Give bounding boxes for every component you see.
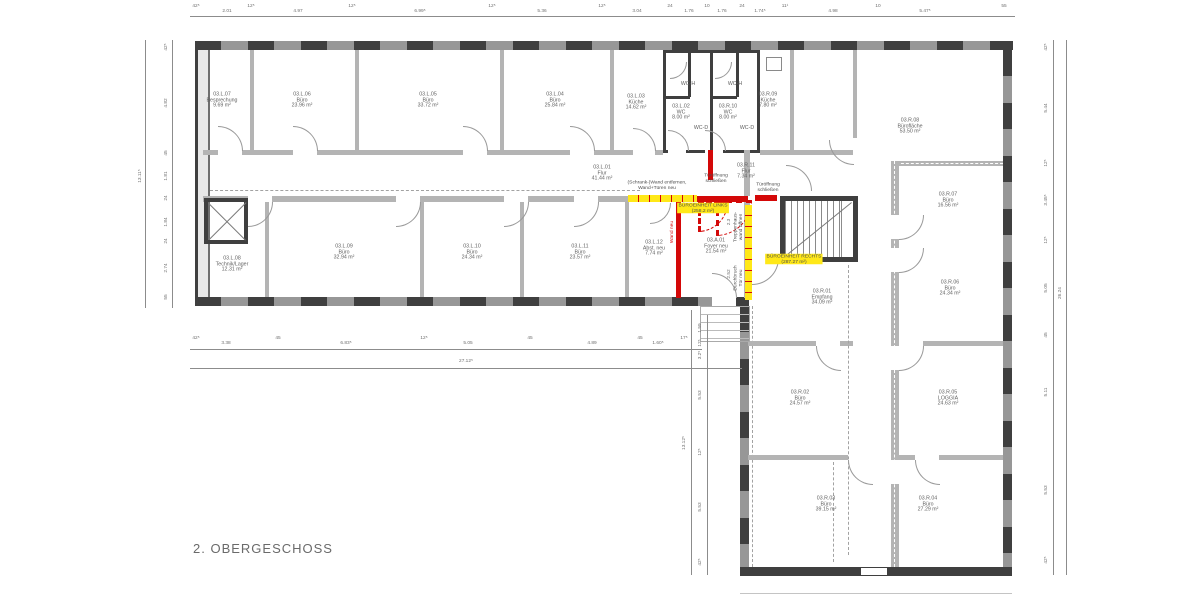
- partition: [500, 50, 504, 150]
- room-label: 03.R.11Flur7.34 m²: [737, 163, 755, 180]
- door-arc: [899, 248, 924, 273]
- dim-label: 42⁵: [1044, 43, 1049, 50]
- room-id: 03.L.12: [643, 240, 665, 246]
- dim-label: 5.11: [1044, 388, 1049, 397]
- wall-r01-r02b: [840, 341, 853, 346]
- room-area: 7.34 m²: [737, 174, 755, 180]
- door-arc: [829, 140, 854, 165]
- dim-label: 42⁵: [698, 558, 703, 565]
- door-arc: [504, 202, 529, 227]
- dim-label: 42⁵: [164, 43, 169, 50]
- dim-line-center: [707, 315, 708, 575]
- room-label: 03.L.02WC8.00 m²: [672, 104, 690, 121]
- dim-label: 1.60⁵: [652, 341, 663, 346]
- dim-label: 2.74: [164, 263, 169, 272]
- dim-label: 12⁵: [247, 4, 254, 9]
- door-arc: [574, 202, 599, 227]
- dim-line-left: [172, 40, 173, 308]
- room-label: 03.L.06Büro23.96 m²: [292, 92, 313, 109]
- r08-wall-dashed-line: [891, 163, 1003, 164]
- room-area: 23.96 m²: [292, 103, 313, 109]
- dim-line-right-total: [1066, 40, 1067, 575]
- dim-label: 11¹: [782, 4, 789, 9]
- wall-to-remove-highlight: [628, 195, 697, 202]
- room-area: 12.31 m²: [216, 267, 249, 273]
- wall-r05-r04b: [939, 455, 1003, 460]
- dim-label: 45: [527, 336, 532, 341]
- room-area: 7.80 m²: [759, 103, 777, 109]
- dim-line-bottom-total: [190, 368, 742, 369]
- dim-label: 3.04: [632, 9, 641, 14]
- dim-label: 55: [164, 294, 169, 299]
- dim-line-right: [1053, 40, 1054, 575]
- room-id: 03.R.07: [938, 192, 959, 198]
- door-arc-stair: [786, 165, 812, 191]
- partition: [355, 50, 359, 150]
- exterior-wall-left: [195, 50, 210, 297]
- dim-label: 12⁵: [1044, 236, 1049, 243]
- dim-label: 5.05: [463, 341, 472, 346]
- dim-label: 2.01: [222, 9, 231, 14]
- partition: [853, 50, 857, 138]
- dim-label: 5.05: [1044, 283, 1049, 292]
- room-label: 03.R.09Küche7.80 m²: [759, 92, 777, 109]
- new-wall: [697, 196, 748, 202]
- kitchen-fixture: [766, 57, 782, 71]
- door-arc: [463, 126, 488, 151]
- room-id: 03.R.02: [790, 390, 811, 396]
- dim-line-bottom-cut: [740, 593, 1012, 594]
- dim-label: 3.38: [221, 341, 230, 346]
- dim-label: 12⁵: [698, 339, 703, 346]
- dim-label: 4.82: [164, 98, 169, 107]
- room-area: 33.72 m²: [418, 103, 439, 109]
- foyer-dim: 2.3: [727, 219, 732, 226]
- room-area: 39.15 m²: [816, 507, 837, 513]
- dim-label: 1.76: [717, 9, 726, 14]
- room-label: 03.L.01Flur41.44 m²: [592, 165, 613, 182]
- dim-label: 17⁵: [680, 336, 687, 341]
- room-label: 03.R.01Empfang34.09 m²: [811, 289, 832, 306]
- dim-label: 45: [275, 336, 280, 341]
- dim-label: 1.81: [164, 171, 169, 180]
- dim-line-left-total: [145, 40, 146, 308]
- partition: [790, 50, 794, 150]
- room-area: 16.56 m²: [938, 203, 959, 209]
- dim-label: 12⁵: [420, 336, 427, 341]
- annotation-close-door-right: Türöffnung schließen: [756, 182, 780, 193]
- room-area: 34.09 m²: [811, 300, 832, 306]
- room-area: 9.69 m²: [207, 103, 238, 109]
- room-label: 03.R.05LOGGIA24.63 m²: [938, 390, 959, 407]
- drawing-title: 2. OBERGESCHOSS: [193, 541, 333, 556]
- dim-line-bottom: [190, 349, 702, 350]
- dim-label: 5.53: [1044, 485, 1049, 494]
- wc-label: WC-D: [740, 125, 754, 131]
- door-arc: [848, 460, 873, 485]
- room-label: 03.L.10Büro24.34 m²: [462, 244, 483, 261]
- room-area: 7.74 m²: [643, 251, 665, 257]
- door-arc: [396, 202, 421, 227]
- dim-label: 1.74⁵: [754, 9, 765, 14]
- exterior-wall-leftwing-bottom: [195, 297, 749, 306]
- wc-label: WC-H: [681, 81, 695, 87]
- room-id: 03.R.04: [918, 496, 939, 502]
- room-id: 03.R.09: [759, 92, 777, 98]
- room-label: 03.R.02Büro24.57 m²: [790, 390, 811, 407]
- annotation-close-door-left: Türöffnung schließen: [704, 173, 728, 184]
- wc-partition: [736, 53, 739, 97]
- dim-label: 10: [875, 4, 880, 9]
- dim-total: 13.12⁵: [682, 436, 687, 450]
- partition: [610, 50, 614, 150]
- dim-label: 1.76: [684, 9, 693, 14]
- room-id: 03.R.01: [811, 289, 832, 295]
- annotation-breakthrough: Durchbruch Tür neu: [733, 265, 744, 290]
- room-area: 23.57 m²: [570, 255, 591, 261]
- dim-label: 6.83⁵: [340, 341, 351, 346]
- room-area: 53.50 m²: [897, 129, 922, 135]
- room-id: 03.L.04: [545, 92, 566, 98]
- door-gap: [891, 215, 899, 239]
- stairwall-opening-highlight: [745, 205, 752, 300]
- annotation-wall-remove: (Schrank-)Wand entfernen, Wand+Türen neu: [628, 180, 687, 191]
- bottom-wall-opening: [861, 568, 887, 575]
- partition: [420, 202, 424, 297]
- annotation-stairwall-open: Treppenhaus- wand öffnen: [733, 212, 744, 242]
- dim-total: 27.12⁵: [459, 359, 473, 364]
- dim-label: 10: [704, 4, 709, 9]
- room-id: 03.A.01: [704, 238, 728, 244]
- room-area: 8.00 m²: [672, 115, 690, 121]
- door-arc: [248, 202, 273, 227]
- door-arc: [899, 346, 924, 371]
- room-id: 03.L.05: [418, 92, 439, 98]
- dim-label: 42⁵: [1044, 556, 1049, 563]
- wall-r02-r03: [748, 455, 848, 460]
- room-label: 03.L.09Büro32.94 m²: [334, 244, 355, 261]
- room-label: 03.L.11Büro23.57 m²: [570, 244, 591, 261]
- door-arc: [915, 460, 940, 485]
- room-area: 32.94 m²: [334, 255, 355, 261]
- dim-label: 1.59: [698, 323, 703, 332]
- room-id: 03.R.08: [897, 118, 922, 124]
- dim-label: 24: [164, 195, 169, 200]
- door-arc: [899, 215, 924, 240]
- dim-label: 5.36: [537, 9, 546, 14]
- dim-label: 3.2⁵: [698, 351, 703, 360]
- dim-label: 12⁵: [348, 4, 355, 9]
- wall-r06-r05: [923, 341, 1003, 346]
- dim-label: 4.98: [828, 9, 837, 14]
- room-id: 03.L.10: [462, 244, 483, 250]
- room-area: 21.54 m²: [704, 249, 728, 255]
- dim-label: 1.84: [164, 217, 169, 226]
- dim-label: 4.97: [293, 9, 302, 14]
- room-area: 8.00 m²: [719, 115, 737, 121]
- room-label: 03.R.10WC8.00 m²: [719, 104, 737, 121]
- exterior-wall-rightblock-right: [1003, 50, 1012, 567]
- dim-label: 42⁵: [192, 4, 199, 9]
- room-area: 24.63 m²: [938, 401, 959, 407]
- door-arc: [650, 203, 671, 224]
- dim-label: 45: [637, 336, 642, 341]
- dim-label: 12⁵: [488, 4, 495, 9]
- door-arc: [293, 126, 318, 151]
- dim-label: 5.53: [698, 502, 703, 511]
- dim-label: 5.47⁵: [919, 9, 930, 14]
- door-gap: [891, 346, 899, 370]
- room-label: 03.L.07Besprechung9.69 m²: [207, 92, 238, 109]
- dim-label: 24: [667, 4, 672, 9]
- floor-plan: 03.L.07Besprechung9.69 m² 03.L.06Büro23.…: [0, 0, 1200, 600]
- door-gap: [891, 460, 899, 484]
- room-id: 03.R.06: [940, 280, 961, 286]
- room-id: 03.L.11: [570, 244, 591, 250]
- foyer-dim: 2.52: [727, 269, 732, 278]
- room-id: 03.L.02: [672, 104, 690, 110]
- door-arc: [816, 346, 841, 371]
- room-area: 24.34 m²: [940, 291, 961, 297]
- room-label: 03.L.05Büro33.72 m²: [418, 92, 439, 109]
- room-id: 03.L.09: [334, 244, 355, 250]
- room-label: 03.L.04Büro25.84 m²: [545, 92, 566, 109]
- room-area: 27.29 m²: [918, 507, 939, 513]
- dim-label: 12⁵: [1044, 159, 1049, 166]
- room-label: 03.L.03Küche14.62 m²: [626, 94, 647, 111]
- annotation-unit-left: BÜROEINHEIT LINKS (258.2 m²): [677, 203, 729, 214]
- new-wall: [676, 202, 681, 298]
- dashed-axis: [848, 265, 849, 555]
- wc-partition: [713, 96, 737, 99]
- dim-label: 24: [739, 4, 744, 9]
- room-id: 03.R.03: [816, 496, 837, 502]
- dim-label: 3.45⁵: [1044, 194, 1049, 205]
- door-arc: [218, 126, 243, 151]
- dim-label: 5.44: [1044, 103, 1049, 112]
- door-arc: [570, 126, 595, 151]
- dim-label: 12⁵: [698, 448, 703, 455]
- dim-total: 13.11⁵: [138, 169, 143, 183]
- room-id: 03.R.10: [719, 104, 737, 110]
- room-label: 03.R.07Büro16.56 m²: [938, 192, 959, 209]
- room-area: 25.84 m²: [545, 103, 566, 109]
- dim-label: 55: [1001, 4, 1006, 9]
- dim-label: 42⁵: [192, 336, 199, 341]
- room-label: 03.L.12Abst. neu7.74 m²: [643, 240, 665, 257]
- dim-label: 12⁵: [598, 4, 605, 9]
- room-label: 03.L.08Technik/Lager12.31 m²: [216, 256, 249, 273]
- dim-label: 24: [164, 238, 169, 243]
- room-area: 24.34 m²: [462, 255, 483, 261]
- room-area: 14.62 m²: [626, 105, 647, 111]
- annotation-unit-right: BÜROEINHEIT RECHTS (287.27 m²): [765, 254, 823, 265]
- room-id: 03.R.05: [938, 390, 959, 396]
- partition: [250, 50, 254, 150]
- room-id: 03.L.03: [626, 94, 647, 100]
- wc-label: WC-H: [728, 81, 742, 87]
- dim-total: 26.24: [1058, 287, 1063, 299]
- dim-label: 6.99⁵: [414, 9, 425, 14]
- dim-label: 4.89: [587, 341, 596, 346]
- exterior-wall-top: [195, 41, 1013, 50]
- dim-label: 45: [164, 150, 169, 155]
- wc-partition: [688, 53, 691, 97]
- wall-r05-r04a: [899, 455, 915, 460]
- room-label: 03.R.06Büro24.34 m²: [940, 280, 961, 297]
- door-arc: [633, 128, 656, 151]
- room-id: 03.L.06: [292, 92, 313, 98]
- room-label: 03.A.01Foyer neu21.54 m²: [704, 238, 728, 255]
- annotation-new-wall: Wand neu: [669, 221, 674, 243]
- corridor-dashed-line: [210, 190, 640, 191]
- door-gap: [891, 248, 899, 272]
- room-label: 03.R.04Büro27.29 m²: [918, 496, 939, 513]
- room-label: 03.R.08Bürofläche53.50 m²: [897, 118, 922, 135]
- wc-label: WC-D: [694, 125, 708, 131]
- room-area: 24.57 m²: [790, 401, 811, 407]
- door-gap: [712, 297, 736, 306]
- dim-line-top: [190, 16, 1015, 17]
- room-label: 03.R.03Büro39.15 m²: [816, 496, 837, 513]
- room-id: 03.L.01: [592, 165, 613, 171]
- dim-label: 5.53: [698, 390, 703, 399]
- partition: [625, 202, 629, 297]
- closed-opening: [755, 195, 777, 201]
- dim-line-center-total: [691, 310, 692, 575]
- dim-label: 45: [1044, 332, 1049, 337]
- room-id: 03.R.11: [737, 163, 755, 169]
- wall-r01-r02: [748, 341, 816, 346]
- room-area: 41.44 m²: [592, 176, 613, 182]
- wc-partition: [666, 96, 690, 99]
